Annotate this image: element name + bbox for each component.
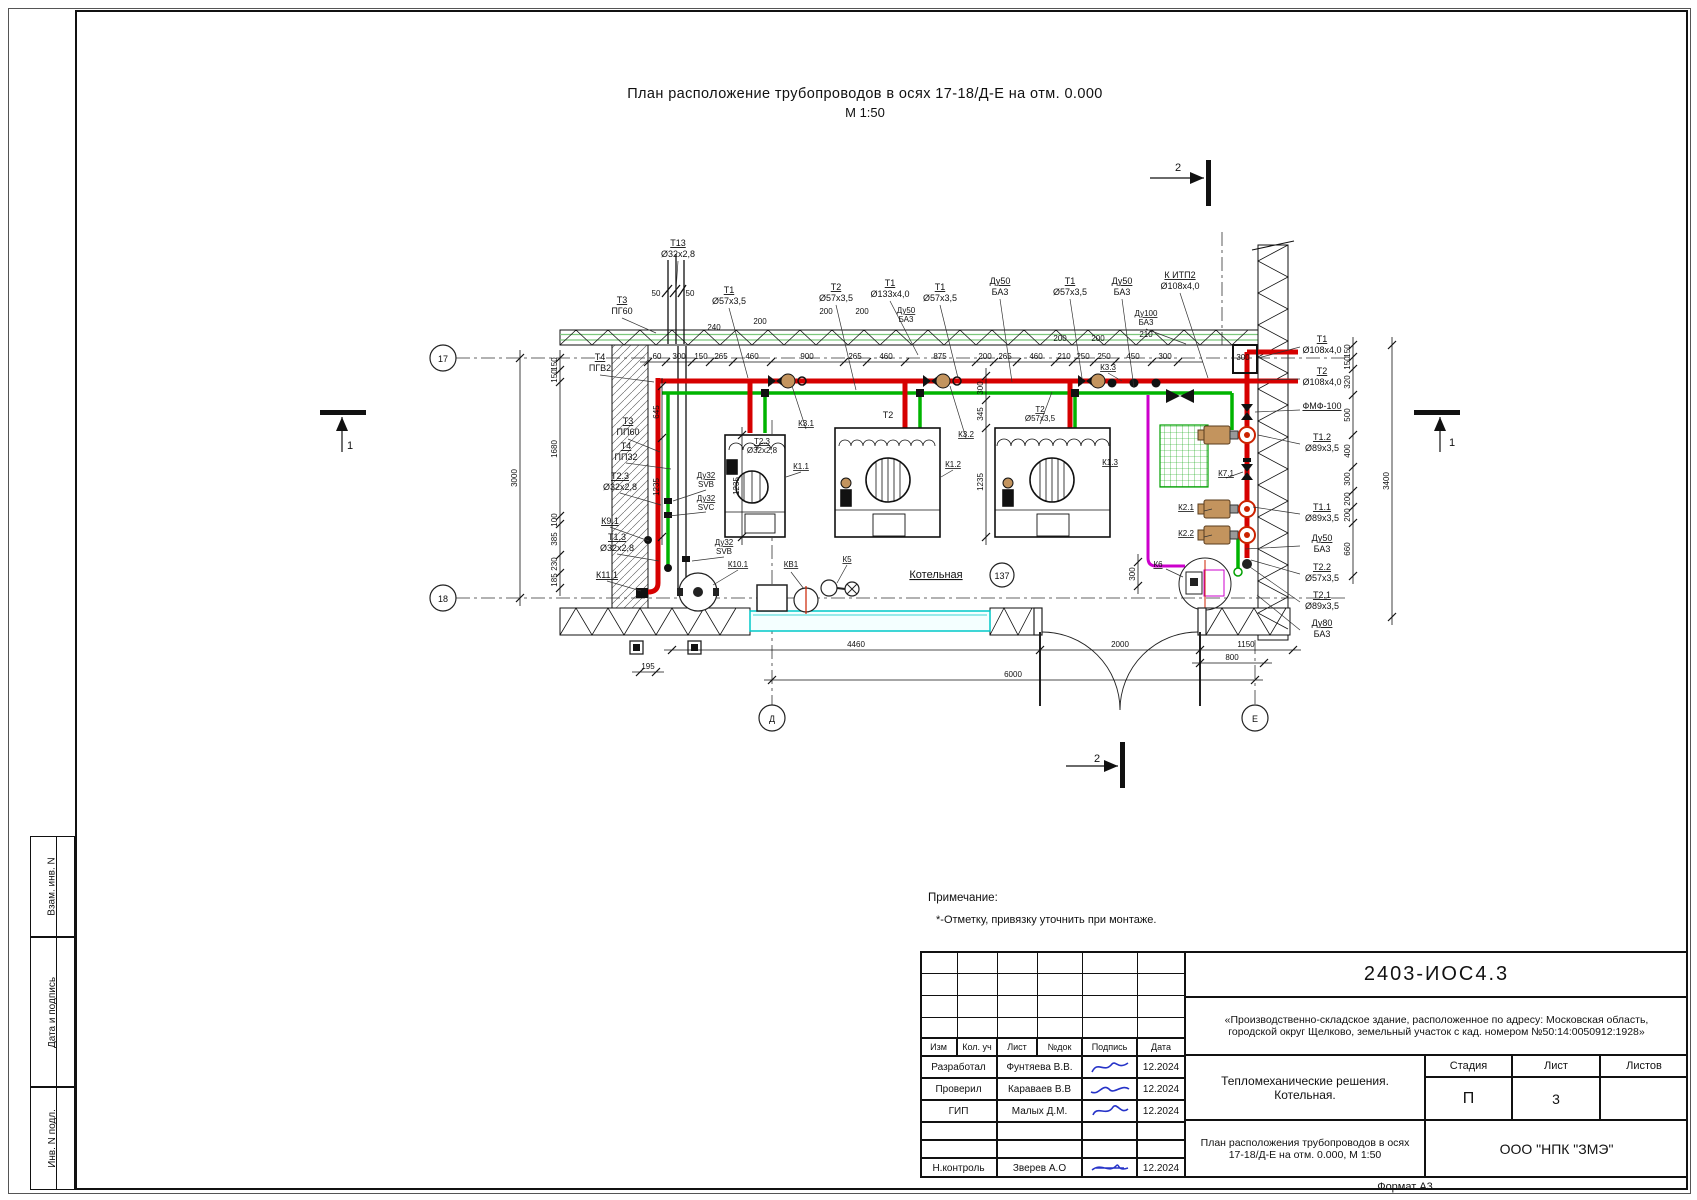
plan-label: 210	[1139, 330, 1153, 339]
plan-label: Т2.3	[754, 437, 771, 446]
dimension-value: 250	[1076, 352, 1090, 361]
dimension-value: 195	[641, 662, 655, 671]
plan-label: Ø57х3,5	[923, 293, 957, 303]
dimension-value: 450	[1126, 352, 1140, 361]
dimension-value: 265	[848, 352, 862, 361]
plan-label: Т2	[831, 282, 842, 292]
plan-label: К3.1	[798, 419, 814, 428]
plan-label: Т1	[1065, 276, 1076, 286]
valve-k111	[636, 588, 648, 598]
plan-label: 1	[1449, 437, 1455, 449]
plan-label: Т3	[617, 295, 628, 305]
dimension-value: 460	[745, 352, 759, 361]
pump-k21	[1198, 500, 1255, 518]
plan-label: ПП32	[615, 452, 638, 462]
plan-label: БА3	[1314, 629, 1331, 639]
plan-label: Т2.3	[611, 471, 629, 481]
plan-label: Котельная	[909, 569, 962, 581]
plan-label: Ду50	[990, 276, 1011, 286]
valve-k71	[1241, 458, 1253, 480]
plan-label: 200	[753, 317, 767, 326]
dimension-value: 1235	[652, 478, 661, 496]
dimension-value: 385	[550, 532, 559, 546]
plan-label: Ду50	[1312, 533, 1333, 543]
plan-label: БА3	[1314, 544, 1331, 554]
dimension-value: 150	[550, 357, 559, 371]
boiler-k12	[835, 428, 940, 537]
plan-label: 200	[819, 307, 833, 316]
dimension-value: 150	[1343, 356, 1352, 370]
plan-label: БА3	[1139, 318, 1154, 327]
plan-label: Ø32х2,8	[661, 249, 695, 259]
plan-label: К1.1	[793, 462, 809, 471]
plan-label: Т1	[885, 278, 896, 288]
plan-label: Ø57х3,5	[712, 296, 746, 306]
dimension-value: 3400	[1382, 472, 1391, 490]
dimension-value: 200	[1343, 508, 1352, 522]
plan-label: Т1	[1317, 334, 1328, 344]
section-mark-1-left	[320, 410, 366, 452]
plan-label: Ø108х4,0	[1302, 345, 1341, 355]
plan-label: К6	[1153, 560, 1163, 569]
valve-k5	[821, 580, 859, 596]
dimension-value: 300	[672, 352, 686, 361]
plan-label: 50	[652, 289, 661, 298]
plan-label: Т1	[724, 285, 735, 295]
plan-label: Ø133х4,0	[870, 289, 909, 299]
dimension-value: 800	[1225, 653, 1239, 662]
dimension-value: 60	[653, 352, 662, 361]
dimension-value: 2000	[1111, 640, 1129, 649]
plan-label: Т2	[883, 410, 894, 420]
plan-label: Ø89х3,5	[1305, 601, 1339, 611]
pump-k6	[1179, 558, 1231, 610]
plan-label: Т2	[1035, 405, 1045, 414]
plan-label: Т1.2	[1313, 432, 1331, 442]
dimension-value: 1680	[550, 440, 559, 458]
floor-channel	[750, 611, 990, 631]
dimension-value: 400	[1343, 444, 1352, 458]
dimension-value: 250	[1097, 352, 1111, 361]
plan-label: К3.3	[1100, 363, 1116, 372]
pump-k22	[1198, 526, 1255, 544]
plan-label: БА3	[899, 315, 914, 324]
plan-label: Ø57х3,5	[1025, 414, 1056, 423]
dimension-value: 265	[998, 352, 1012, 361]
dimension-value: 100	[550, 513, 559, 527]
plan-label: К7.1	[1218, 469, 1234, 478]
plan-label: Ø108х4,0	[1302, 377, 1341, 387]
boilers	[725, 428, 1110, 537]
plan-label: 17	[438, 354, 448, 364]
door	[1034, 608, 1206, 710]
plan-label: Ø57х3,5	[819, 293, 853, 303]
title-block-border	[920, 951, 1688, 1178]
dimension-value: 200	[978, 352, 992, 361]
plan-label: К10.1	[728, 560, 749, 569]
plan-label: Т1	[935, 282, 946, 292]
equipment	[630, 345, 1257, 710]
plan-label: Т2.1	[1313, 590, 1331, 600]
drain-k101	[677, 573, 719, 611]
section-mark-2-bottom	[1066, 742, 1125, 788]
plan-label: К3.2	[958, 430, 974, 439]
plan-label: Ø108х4,0	[1160, 281, 1199, 291]
dimension-value: 150	[1343, 344, 1352, 358]
plan-label: ФМФ-100	[1302, 401, 1341, 411]
plan-label: 1	[347, 440, 353, 452]
plan-label: Т2	[1317, 366, 1328, 376]
plan-label: К1.3	[1102, 458, 1118, 467]
dimension-value: 660	[1343, 542, 1352, 556]
plan-label: Ø32х2,8	[747, 446, 778, 455]
dimension-value: 345	[976, 407, 985, 421]
plan-label: К11.1	[596, 570, 618, 580]
dimension-value: 875	[933, 352, 947, 361]
dimension-value: 300	[976, 381, 985, 395]
plan-label: КВ1	[784, 560, 799, 569]
plan-label: Т1.1	[1313, 502, 1331, 512]
plan-label: ПГВ2	[589, 363, 611, 373]
dimension-value: 185	[550, 573, 559, 587]
notes-heading: Примечание:	[928, 888, 1156, 910]
plan-label: Ду32	[697, 471, 716, 480]
plan-label: Ду100	[1135, 309, 1158, 318]
plan-label: К5	[842, 555, 852, 564]
dimension-value: 300	[1128, 567, 1137, 581]
plan-label: Ø57х3,5	[1305, 573, 1339, 583]
column-markers	[630, 641, 701, 654]
plan-label: БА3	[992, 287, 1009, 297]
plan-label: Ø57х3,5	[1053, 287, 1087, 297]
plan-label: 2	[1094, 753, 1100, 765]
plan-label: 50	[686, 289, 695, 298]
dimension-value: 460	[879, 352, 893, 361]
dimension-value: 230	[550, 557, 559, 571]
plan-label: Т3	[623, 416, 634, 426]
plan-label: Т4	[621, 441, 632, 451]
dimension-value: 4460	[847, 640, 865, 649]
dimension-value: 150	[694, 352, 708, 361]
pump-t12	[1198, 426, 1255, 444]
plan-label: 18	[438, 594, 448, 604]
plan-label: Ø89х3,5	[1305, 443, 1339, 453]
plan-label: Ду32	[697, 494, 716, 503]
plan-label: Ø89х3,5	[1305, 513, 1339, 523]
dimension-value: 200	[1343, 492, 1352, 506]
plan-label: Т13	[670, 238, 686, 248]
dimension-value: 150	[550, 369, 559, 383]
plan-label: Ду32	[715, 538, 734, 547]
plan-label: Ø32х2,8	[603, 482, 637, 492]
note-item: *-Отметку, привязку уточнить при монтаже…	[928, 910, 1156, 931]
dimension-value: 6000	[1004, 670, 1022, 679]
plan-label: Ду50	[897, 306, 916, 315]
plan-label: 240	[707, 323, 721, 332]
plan-label: 137	[994, 571, 1009, 581]
boiler-k13	[995, 428, 1110, 537]
plan-label: 300	[1236, 353, 1250, 362]
plan-label: 200	[855, 307, 869, 316]
plan-label: Ду50	[1112, 276, 1133, 286]
dimension-value: 265	[714, 352, 728, 361]
flow-arrow	[1180, 389, 1194, 403]
plan-label: Д	[769, 714, 775, 724]
dimension-value: 1235	[976, 473, 985, 491]
notes: Примечание: *-Отметку, привязку уточнить…	[928, 888, 1156, 931]
plan-label: SVB	[716, 547, 732, 556]
flow-arrow	[1166, 389, 1180, 403]
dimension-value: 210	[1057, 352, 1071, 361]
plan-label: Ø32х2,8	[600, 543, 634, 553]
dimension-value: 645	[652, 405, 661, 419]
dimension-value: 900	[800, 352, 814, 361]
drawing-sheet: Взам. инв. N Дата и подпись Инв. N подл.…	[0, 0, 1697, 1200]
drain-kv1	[794, 586, 818, 614]
dimension-value: 1150	[1237, 640, 1255, 649]
plan-label: ПП60	[617, 427, 640, 437]
plan-label: Т4	[595, 352, 606, 362]
plan-label: SVB	[698, 480, 714, 489]
plan-label: Т2.2	[1313, 562, 1331, 572]
plan-label: SVC	[698, 503, 715, 512]
dimension-value: 3000	[510, 469, 519, 487]
dimension-value: 1235	[732, 477, 741, 495]
dimension-value: 500	[1343, 408, 1352, 422]
plan-label: К2.1	[1178, 503, 1194, 512]
dimension-value: 300	[1158, 352, 1172, 361]
plan-label: 2	[1175, 162, 1181, 174]
plan-label: К2.2	[1178, 529, 1194, 538]
plan-label: Е	[1252, 714, 1258, 724]
plan-label: К ИТП2	[1164, 270, 1195, 280]
dimension-value: 460	[1029, 352, 1043, 361]
dimension-value: 320	[1343, 375, 1352, 389]
filter-fmf100	[1241, 404, 1253, 420]
plan-label: 200	[1091, 334, 1105, 343]
format-label: Формат А3	[1340, 1181, 1470, 1193]
floor-box	[757, 585, 787, 611]
plan-label: К1.2	[945, 460, 961, 469]
plan-label: ПГ60	[611, 306, 632, 316]
gas-pipes	[662, 254, 686, 592]
plan-label: Ду80	[1312, 618, 1333, 628]
plan-label: БА3	[1114, 287, 1131, 297]
dimension-value: 300	[1343, 472, 1352, 486]
plan-label: 200	[1053, 334, 1067, 343]
pipe-end	[1234, 568, 1242, 576]
plan-label: Т1.3	[608, 532, 626, 542]
plan-label: К9.1	[601, 516, 619, 526]
